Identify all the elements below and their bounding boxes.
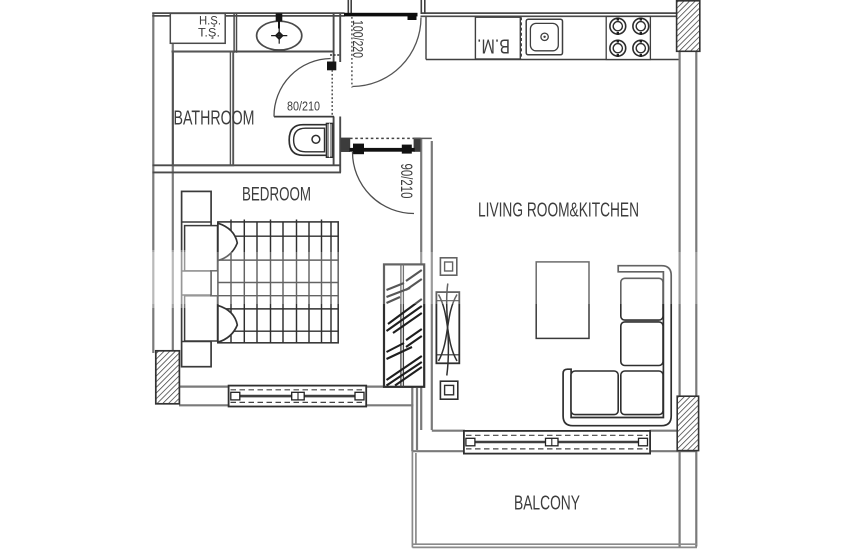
svg-text:B.M.: B.M. <box>477 35 510 57</box>
svg-text:100/220: 100/220 <box>349 20 366 58</box>
svg-text:BATHROOM: BATHROOM <box>174 107 255 129</box>
svg-text:LIVING ROOM&KITCHEN: LIVING ROOM&KITCHEN <box>478 198 639 221</box>
svg-text:90/210: 90/210 <box>397 164 416 199</box>
svg-text:80/210: 80/210 <box>287 100 320 114</box>
svg-text:BALCONY: BALCONY <box>514 492 580 515</box>
svg-text:BEDROOM: BEDROOM <box>242 184 311 206</box>
svg-text:T.Ş.: T.Ş. <box>198 26 220 39</box>
